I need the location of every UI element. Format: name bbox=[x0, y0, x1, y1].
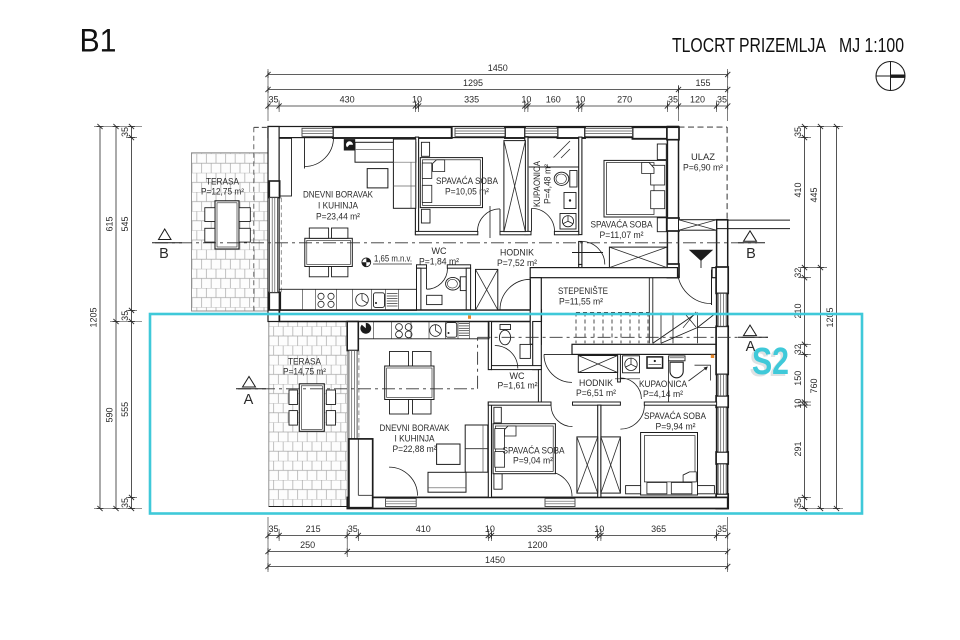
svg-text:ULAZ: ULAZ bbox=[691, 151, 715, 162]
svg-text:DNEVNI BORAVAK: DNEVNI BORAVAK bbox=[380, 423, 451, 434]
svg-text:35: 35 bbox=[717, 95, 727, 105]
svg-text:P=12,75 m²: P=12,75 m² bbox=[201, 187, 244, 197]
svg-text:P=11,55 m²: P=11,55 m² bbox=[559, 297, 603, 307]
svg-text:35: 35 bbox=[120, 127, 130, 137]
svg-text:P=1,84 m²: P=1,84 m² bbox=[419, 257, 459, 267]
svg-text:WC: WC bbox=[432, 245, 447, 256]
svg-text:160: 160 bbox=[546, 95, 561, 105]
svg-text:10: 10 bbox=[793, 399, 803, 409]
svg-text:35: 35 bbox=[717, 524, 727, 534]
svg-text:35: 35 bbox=[120, 498, 130, 508]
svg-text:445: 445 bbox=[809, 187, 819, 202]
svg-text:270: 270 bbox=[617, 95, 632, 105]
svg-text:35: 35 bbox=[268, 95, 278, 105]
svg-text:SPAVAĆA SOBA: SPAVAĆA SOBA bbox=[644, 411, 707, 422]
svg-text:P=9,94 m²: P=9,94 m² bbox=[656, 422, 696, 432]
svg-text:TLOCRT PRIZEMLJA MJ 1:100: TLOCRT PRIZEMLJA MJ 1:100 bbox=[672, 35, 904, 57]
svg-text:STEPENIŠTE: STEPENIŠTE bbox=[558, 286, 608, 297]
svg-text:155: 155 bbox=[695, 78, 710, 88]
svg-text:10: 10 bbox=[594, 524, 604, 534]
svg-text:760: 760 bbox=[809, 378, 819, 393]
svg-text:1205: 1205 bbox=[825, 307, 835, 327]
svg-text:TERASA: TERASA bbox=[206, 177, 240, 187]
svg-text:215: 215 bbox=[306, 524, 321, 534]
svg-text:10: 10 bbox=[485, 524, 495, 534]
svg-text:P=4,48 m²: P=4,48 m² bbox=[543, 164, 553, 204]
svg-text:335: 335 bbox=[537, 524, 552, 534]
svg-text:410: 410 bbox=[416, 524, 431, 534]
svg-text:410: 410 bbox=[793, 182, 803, 197]
svg-text:SPAVAĆA SOBA: SPAVAĆA SOBA bbox=[591, 220, 654, 231]
svg-text:1205: 1205 bbox=[89, 307, 99, 327]
svg-text:210: 210 bbox=[793, 303, 803, 318]
svg-text:35: 35 bbox=[348, 524, 358, 534]
svg-text:430: 430 bbox=[340, 95, 355, 105]
svg-text:32: 32 bbox=[793, 268, 803, 278]
svg-text:32: 32 bbox=[793, 344, 803, 354]
svg-text:S2: S2 bbox=[752, 341, 789, 383]
svg-text:35: 35 bbox=[120, 311, 130, 321]
svg-text:P=11,07 m²: P=11,07 m² bbox=[600, 230, 644, 240]
svg-text:1200: 1200 bbox=[527, 540, 547, 550]
svg-text:P=4,14 m²: P=4,14 m² bbox=[643, 389, 683, 399]
svg-text:250: 250 bbox=[300, 540, 315, 550]
svg-text:B1: B1 bbox=[80, 23, 117, 59]
svg-text:P=23,44 m²: P=23,44 m² bbox=[316, 212, 360, 222]
svg-text:I KUHINJA: I KUHINJA bbox=[318, 201, 359, 212]
svg-text:615: 615 bbox=[105, 216, 115, 231]
svg-text:35: 35 bbox=[668, 95, 678, 105]
svg-text:P=14,75 m²: P=14,75 m² bbox=[283, 367, 326, 377]
svg-text:SPAVAĆA SOBA: SPAVAĆA SOBA bbox=[436, 176, 499, 187]
svg-text:P=6,90 m²: P=6,90 m² bbox=[683, 163, 723, 173]
svg-text:1450: 1450 bbox=[485, 555, 505, 565]
svg-text:35: 35 bbox=[793, 498, 803, 508]
svg-text:365: 365 bbox=[651, 524, 666, 534]
svg-text:335: 335 bbox=[464, 95, 479, 105]
svg-text:555: 555 bbox=[120, 402, 130, 417]
svg-text:P=6,51 m²: P=6,51 m² bbox=[576, 388, 616, 398]
svg-text:35: 35 bbox=[793, 127, 803, 137]
svg-text:A: A bbox=[244, 392, 254, 408]
svg-text:35: 35 bbox=[268, 524, 278, 534]
svg-text:P=10,05 m²: P=10,05 m² bbox=[445, 187, 489, 197]
svg-text:545: 545 bbox=[120, 216, 130, 231]
svg-text:P=9,04 m²: P=9,04 m² bbox=[513, 456, 553, 466]
svg-text:1,65 m.n.v.: 1,65 m.n.v. bbox=[374, 254, 412, 264]
svg-text:1450: 1450 bbox=[488, 63, 508, 73]
svg-text:1295: 1295 bbox=[463, 78, 483, 88]
svg-text:B: B bbox=[746, 246, 756, 262]
svg-text:KUPAONICA: KUPAONICA bbox=[531, 160, 542, 207]
svg-text:WC: WC bbox=[510, 370, 525, 381]
svg-text:120: 120 bbox=[690, 95, 705, 105]
svg-text:10: 10 bbox=[575, 95, 585, 105]
svg-text:P=1,61 m²: P=1,61 m² bbox=[498, 381, 538, 391]
svg-text:10: 10 bbox=[521, 95, 531, 105]
svg-text:I KUHINJA: I KUHINJA bbox=[395, 434, 436, 445]
svg-text:HODNIK: HODNIK bbox=[500, 248, 535, 259]
svg-text:291: 291 bbox=[793, 441, 803, 456]
svg-text:150: 150 bbox=[793, 371, 803, 386]
svg-text:B: B bbox=[159, 246, 169, 262]
svg-text:DNEVNI BORAVAK: DNEVNI BORAVAK bbox=[303, 190, 374, 201]
svg-text:P=7,52 m²: P=7,52 m² bbox=[497, 258, 537, 268]
svg-text:10: 10 bbox=[412, 95, 422, 105]
svg-text:TERASA: TERASA bbox=[288, 357, 322, 367]
svg-text:P=22,88 m²: P=22,88 m² bbox=[393, 444, 437, 454]
svg-text:590: 590 bbox=[105, 407, 115, 422]
